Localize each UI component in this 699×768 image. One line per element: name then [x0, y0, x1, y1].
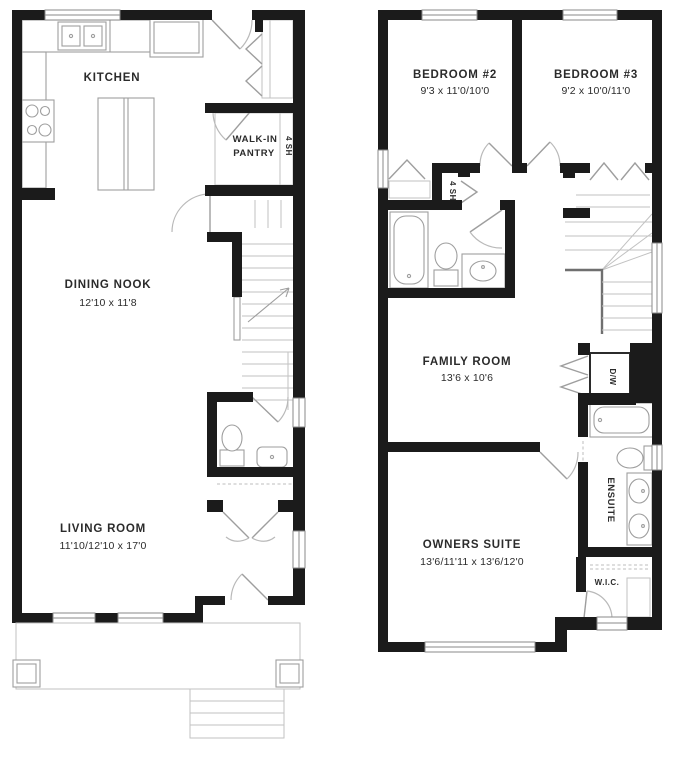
living-room-label: LIVING ROOM — [60, 523, 146, 535]
bedroom3-dims: 9'2 x 10'0/11'0 — [562, 85, 631, 97]
floor1-labels: KITCHEN WALK-IN PANTRY 4 SH DINING NOOK … — [59, 72, 293, 552]
ensuite-tub — [590, 403, 653, 437]
bedroom2-label: BEDROOM #2 — [413, 69, 497, 81]
porch — [13, 623, 303, 738]
powder-toilet — [220, 425, 244, 466]
dw-label: D/W — [608, 368, 617, 385]
owners-suite-label: OWNERS SUITE — [423, 539, 521, 551]
bedroom2-closet — [389, 160, 430, 198]
bath-tub — [390, 212, 428, 288]
porch-column-left — [13, 660, 40, 687]
ensuite-label: ENSUITE — [605, 477, 616, 522]
owners-suite-dims: 13'6/11'11 x 13'6/12'0 — [420, 556, 524, 568]
linen-shelf-label: 4 SH — [448, 181, 457, 201]
bath-vanity — [462, 254, 505, 288]
dining-nook-dims: 12'10 x 11'8 — [79, 297, 137, 309]
stair-rail — [234, 297, 240, 340]
ensuite-toilet — [617, 446, 656, 470]
family-room-label: FAMILY ROOM — [423, 356, 512, 368]
kitchen-label: KITCHEN — [84, 72, 141, 84]
laundry-closet — [561, 353, 630, 397]
dining-nook-label: DINING NOOK — [65, 279, 152, 291]
stove — [22, 100, 54, 142]
floor1-plan: KITCHEN WALK-IN PANTRY 4 SH DINING NOOK … — [12, 10, 305, 738]
wic-shelving — [590, 565, 650, 617]
bedroom3-label: BEDROOM #3 — [554, 69, 638, 81]
pantry-shelf-label: 4 SH — [284, 136, 293, 156]
floor1-fixtures — [22, 18, 303, 484]
powder-sink — [257, 447, 287, 467]
back-closet — [246, 20, 293, 98]
floor2-plan: BEDROOM #2 9'3 x 11'0/10'0 BEDROOM #3 9'… — [378, 10, 662, 652]
pantry-label-line2: PANTRY — [233, 148, 275, 159]
floorplan-drawing: KITCHEN WALK-IN PANTRY 4 SH DINING NOOK … — [0, 0, 699, 768]
kitchen-sink — [58, 22, 106, 50]
ensuite-vanity — [627, 473, 652, 545]
floor2-stairs — [565, 214, 652, 334]
floor2-labels: BEDROOM #2 9'3 x 11'0/10'0 BEDROOM #3 9'… — [413, 69, 638, 587]
pantry-label-line1: WALK-IN — [233, 134, 278, 145]
living-room-dims: 11'10/12'10 x 17'0 — [59, 540, 146, 552]
floorplan-sheet: KITCHEN WALK-IN PANTRY 4 SH DINING NOOK … — [0, 0, 699, 768]
fridge — [150, 18, 203, 57]
linen-door — [461, 181, 477, 203]
kitchen-island — [98, 98, 154, 190]
bath-toilet — [434, 243, 458, 286]
porch-column-right — [276, 660, 303, 687]
wic-label: W.I.C. — [595, 578, 620, 587]
floor1-stairs — [234, 244, 293, 410]
porch-steps — [190, 689, 284, 738]
family-room-dims: 13'6 x 10'6 — [441, 372, 493, 384]
bedroom2-dims: 9'3 x 11'0/10'0 — [421, 85, 490, 97]
